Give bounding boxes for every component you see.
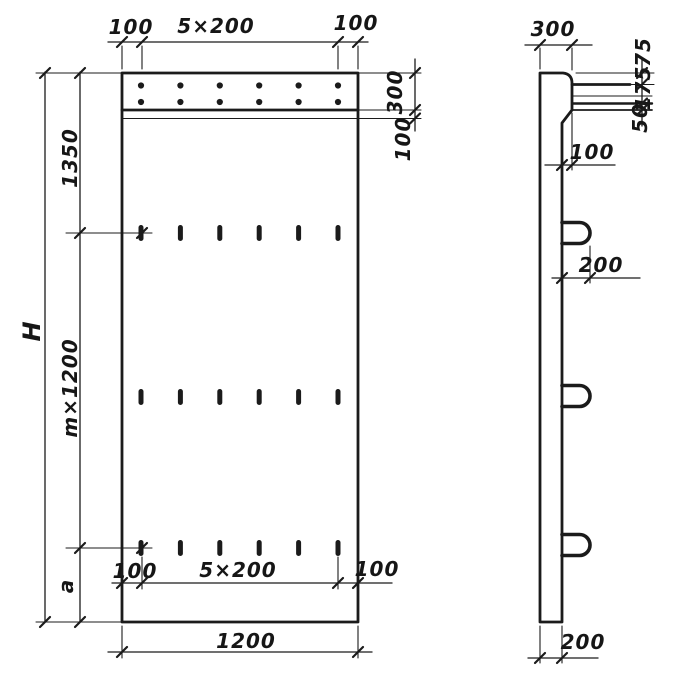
slot-mark [139,389,144,405]
hole-dot [256,82,262,88]
hole-dot [335,99,341,105]
dim-left-upper: 1350 [58,128,82,188]
panel-drawing: 100 5×200 100 H 1350 m×1200 a 300 100 10… [0,0,700,700]
loop [562,535,590,556]
wall-section-outline [540,73,572,622]
slot-mark [178,225,183,241]
slot-mark [336,225,341,241]
front-right-dimensions: 300 100 [358,59,421,161]
dim-side-upper: 75 [631,37,655,67]
dim-right-upper: 300 [383,70,407,115]
hole-dot [138,82,144,88]
front-top-dimension: 100 5×200 100 [108,11,378,69]
dim-overall-width: 1200 [216,629,276,653]
hole-dot [217,82,223,88]
dim-bottom-right: 100 [355,557,400,581]
slot-mark [178,540,183,556]
dim-side-top: 300 [531,17,576,41]
hole-dot [177,99,183,105]
front-view [122,73,358,622]
slot-mark [336,540,341,556]
slot-mark [296,389,301,405]
dim-wall-thickness: 200 [561,630,606,654]
slot-openings [139,225,341,556]
dim-top-right: 100 [334,11,379,35]
hole-dot [217,99,223,105]
panel-outline [122,73,358,622]
dim-top-center: 5×200 [177,14,254,38]
slot-mark [257,389,262,405]
loop [562,386,590,407]
loop [562,223,590,244]
hole-dot [296,99,302,105]
hole-dot [335,82,341,88]
drawing-sheet: 100 5×200 100 H 1350 m×1200 a 300 100 10… [0,0,700,700]
dim-bottom-left: 100 [113,559,158,583]
side-step-dimension: 100 [545,113,615,170]
front-left-dimensions: H 1350 m×1200 a [18,72,152,622]
slot-mark [336,389,341,405]
side-loop-dimension: 200 [552,246,640,283]
dim-side-lower: 50 [628,103,652,133]
dim-overall-height: H [18,320,46,341]
slot-mark [296,540,301,556]
dim-bottom-center: 5×200 [199,558,276,582]
hole-dot [296,82,302,88]
dim-top-left: 100 [109,15,154,39]
slot-mark [178,389,183,405]
slot-mark [257,540,262,556]
slot-mark [296,225,301,241]
slot-mark [217,225,222,241]
anchor-holes [138,82,341,105]
hole-dot [256,99,262,105]
side-top-dimension: 300 [525,17,592,70]
hole-dot [177,82,183,88]
slot-mark [257,225,262,241]
dim-left-lower: a [54,579,78,594]
hole-dot [138,99,144,105]
dim-left-middle: m×1200 [58,338,82,437]
front-bottom-overall-dimension: 1200 [108,626,372,658]
dim-loop: 200 [579,253,624,277]
slot-mark [217,389,222,405]
slot-mark [217,540,222,556]
